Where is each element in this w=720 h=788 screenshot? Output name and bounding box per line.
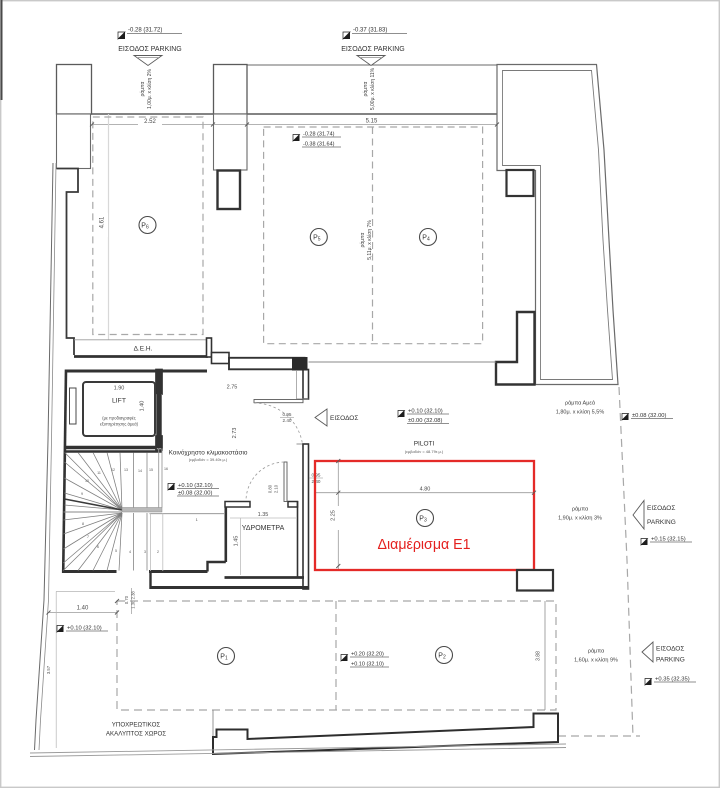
svg-text:±0.00 (32.08): ±0.00 (32.08): [408, 418, 443, 424]
svg-text:+0.15 (32.15): +0.15 (32.15): [651, 537, 686, 543]
svg-text:ράμπα: ράμπα: [359, 232, 366, 247]
svg-text:3: 3: [144, 550, 146, 554]
svg-text:PARKING: PARKING: [647, 519, 676, 526]
svg-text:ΕΙΣΟΔΟΣ PARKING: ΕΙΣΟΔΟΣ PARKING: [118, 46, 181, 53]
svg-text:4: 4: [129, 550, 131, 554]
svg-text:0.95: 0.95: [283, 412, 292, 417]
svg-text:2.40: 2.40: [283, 418, 292, 423]
svg-text:-0.28 (31.74): -0.28 (31.74): [303, 132, 335, 138]
svg-text:3.57: 3.57: [46, 665, 51, 674]
svg-text:P2: P2: [438, 653, 446, 661]
svg-text:5.15: 5.15: [366, 119, 378, 125]
svg-text:10: 10: [85, 479, 89, 483]
svg-text:Κοινόχρηστο κλιμακοστάσιο: Κοινόχρηστο κλιμακοστάσιο: [169, 449, 248, 457]
svg-text:8: 8: [82, 522, 84, 526]
svg-text:9: 9: [81, 492, 83, 496]
svg-text:1.35: 1.35: [258, 512, 269, 518]
svg-text:Δ.Ε.Η.: Δ.Ε.Η.: [134, 346, 153, 353]
svg-text:+0.20 (32.20): +0.20 (32.20): [351, 652, 384, 658]
svg-text:ράμπα: ράμπα: [139, 81, 146, 96]
svg-text:1,90μ. x κλίση 3%: 1,90μ. x κλίση 3%: [558, 516, 602, 522]
svg-text:14: 14: [138, 469, 142, 473]
svg-text:+0.10 (32.10): +0.10 (32.10): [67, 626, 102, 632]
svg-text:±0.08 (32.00): ±0.08 (32.00): [632, 413, 667, 419]
svg-text:P5: P5: [313, 235, 321, 243]
svg-text:4.80: 4.80: [420, 487, 431, 493]
svg-text:P1: P1: [220, 654, 228, 662]
svg-text:13: 13: [124, 468, 128, 472]
svg-text:2.73: 2.73: [232, 428, 238, 439]
svg-text:Διαμέρισμα Ε1: Διαμέρισμα Ε1: [378, 537, 471, 553]
svg-text:1.40: 1.40: [77, 606, 89, 612]
svg-text:PILOTI: PILOTI: [414, 441, 435, 448]
svg-text:ράμπα: ράμπα: [572, 506, 589, 513]
svg-text:-0.38 (31.64): -0.38 (31.64): [303, 142, 335, 148]
svg-text:ΕΙΣΟΔΟΣ PARKING: ΕΙΣΟΔΟΣ PARKING: [341, 46, 404, 53]
svg-text:5: 5: [115, 549, 117, 553]
svg-text:-0.28 (31.72): -0.28 (31.72): [128, 28, 162, 34]
svg-text:ΕΙΣΟΔΟΣ: ΕΙΣΟΔΟΣ: [647, 505, 675, 512]
svg-text:(εμβαδόν = 39.40τ.μ.): (εμβαδόν = 39.40τ.μ.): [189, 457, 228, 462]
svg-text:11: 11: [97, 471, 101, 475]
svg-text:3.88: 3.88: [536, 651, 542, 661]
svg-text:0.95: 0.95: [312, 473, 321, 478]
svg-text:2.25: 2.25: [331, 510, 337, 521]
svg-text:12: 12: [111, 468, 115, 472]
svg-text:1,80μ. x κλίση 5,5%: 1,80μ. x κλίση 5,5%: [556, 410, 605, 416]
svg-text:16: 16: [164, 467, 168, 471]
svg-text:-0.37 (31.83): -0.37 (31.83): [353, 28, 387, 34]
svg-text:P6: P6: [141, 223, 149, 231]
svg-text:ΥΔΡΟΜΕΤΡΑ: ΥΔΡΟΜΕΤΡΑ: [242, 525, 285, 532]
svg-text:P3: P3: [419, 516, 427, 524]
svg-text:15: 15: [149, 468, 153, 472]
svg-text:P4: P4: [422, 235, 430, 243]
svg-text:ΕΙΣΟΔΟΣ: ΕΙΣΟΔΟΣ: [330, 415, 358, 422]
svg-text:(με προδιαγραφές: (με προδιαγραφές: [102, 416, 136, 421]
svg-text:±0.08 (32.00): ±0.08 (32.00): [178, 491, 213, 497]
svg-text:ράμπα: ράμπα: [588, 648, 605, 655]
svg-text:6: 6: [97, 545, 99, 549]
svg-text:ΑΚΑΛΥΠΤΟΣ ΧΩΡΟΣ: ΑΚΑΛΥΠΤΟΣ ΧΩΡΟΣ: [106, 731, 166, 738]
svg-text:2.75: 2.75: [227, 385, 238, 391]
svg-text:1,60μ. x κλίση 9%: 1,60μ. x κλίση 9%: [574, 658, 618, 664]
svg-text:ράμπα: ράμπα: [362, 81, 369, 96]
svg-text:2.40: 2.40: [312, 479, 321, 484]
svg-text:2.10: 2.10: [274, 484, 279, 493]
svg-text:2.52: 2.52: [144, 119, 156, 125]
svg-text:PARKING: PARKING: [656, 657, 685, 664]
svg-text:2: 2: [157, 550, 159, 554]
svg-text:ράμπα Αμεά: ράμπα Αμεά: [565, 400, 596, 407]
svg-text:1.38 2.38: 1.38 2.38: [131, 591, 136, 609]
svg-text:1.40: 1.40: [140, 401, 146, 412]
svg-text:ΕΙΣΟΔΟΣ: ΕΙΣΟΔΟΣ: [656, 646, 684, 653]
svg-text:1.45: 1.45: [234, 536, 240, 547]
svg-text:5,11μ. x κλίση 7%: 5,11μ. x κλίση 7%: [367, 220, 373, 260]
svg-text:0.80: 0.80: [268, 484, 273, 493]
svg-text:5,00μ. x κλίση 11%: 5,00μ. x κλίση 11%: [370, 67, 376, 110]
svg-text:ΥΠΟΧΡΕΩΤΙΚΟΣ: ΥΠΟΧΡΕΩΤΙΚΟΣ: [112, 722, 161, 729]
svg-text:7: 7: [87, 535, 89, 539]
svg-text:4.61: 4.61: [100, 216, 106, 228]
svg-text:+0.35 (32.35): +0.35 (32.35): [655, 677, 690, 683]
svg-text:LIFT: LIFT: [112, 398, 126, 405]
svg-text:+0.10 (32.10): +0.10 (32.10): [408, 409, 443, 415]
svg-text:+0.10 (32.10): +0.10 (32.10): [178, 483, 213, 489]
svg-text:εξυπηρέτησης άμεά): εξυπηρέτησης άμεά): [100, 422, 139, 427]
svg-text:0.70: 0.70: [124, 595, 129, 604]
svg-text:1.90: 1.90: [114, 386, 125, 392]
svg-text:(εμβαδόν = 48.79τ.μ.): (εμβαδόν = 48.79τ.μ.): [405, 449, 444, 454]
svg-text:+0.10 (32.10): +0.10 (32.10): [351, 662, 384, 668]
svg-text:1,00μ. x κλίση 2%: 1,00μ. x κλίση 2%: [147, 69, 153, 109]
